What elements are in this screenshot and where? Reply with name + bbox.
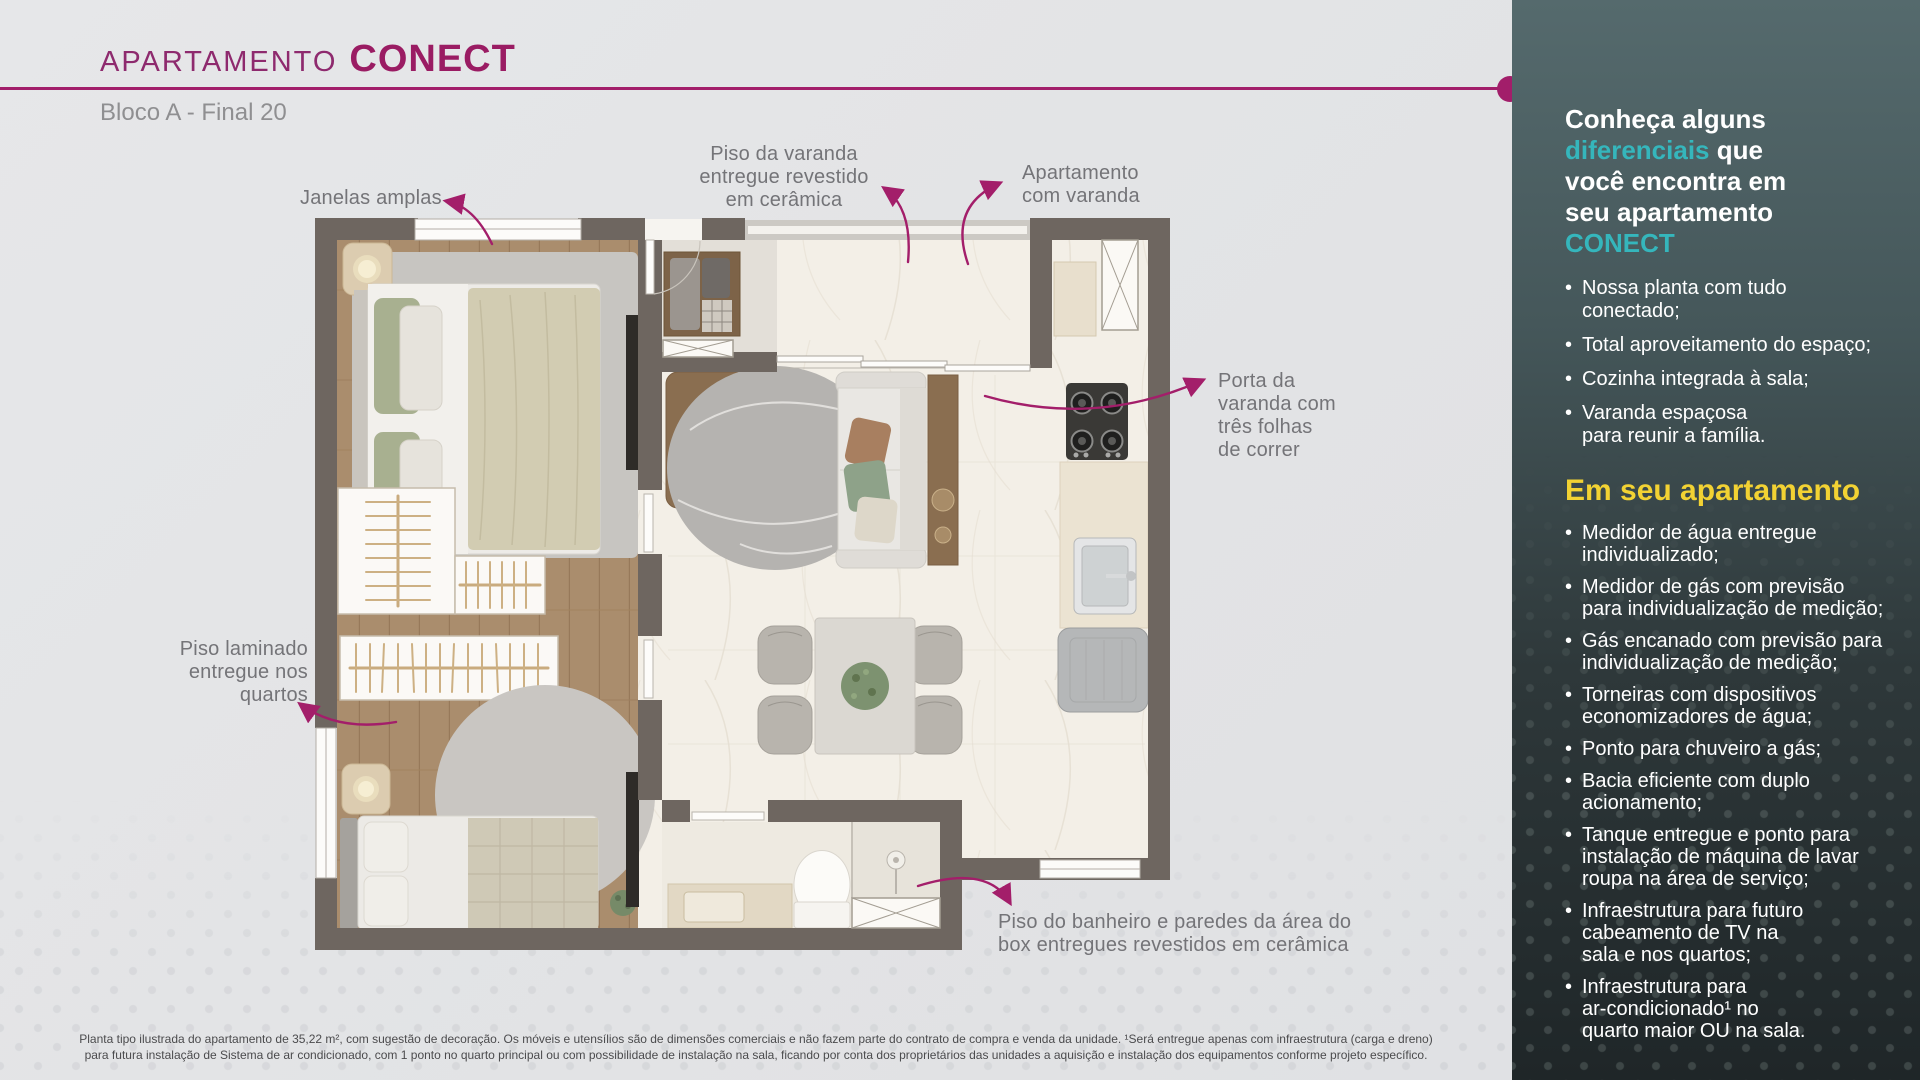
sidebar: Conheça alguns diferenciais que você enc… xyxy=(1512,0,1920,1080)
annotation-piso-varanda: Piso da varanda entregue revestido em ce… xyxy=(698,143,870,212)
lamp-icon xyxy=(358,781,374,797)
heading-accent-diferenciais: diferenciais xyxy=(1565,135,1710,165)
list-item: Nossa planta com tudo conectado; xyxy=(1565,277,1890,323)
bedroom2-door-leaf xyxy=(644,640,653,698)
entry-door-leaf xyxy=(646,240,654,294)
list-item: Medidor de água entregue individualizado… xyxy=(1565,522,1890,566)
heading-accent-conect: CONECT xyxy=(1565,228,1675,258)
annotation-piso-laminado: Piso laminado entregue nos quartos xyxy=(178,638,308,707)
bedroom2-window xyxy=(316,728,336,878)
list-item: Total aproveitamento do espaço; xyxy=(1565,334,1890,357)
cooktop xyxy=(1066,383,1128,460)
varanda-counter xyxy=(1054,262,1096,336)
bathroom-door-leaf xyxy=(692,812,764,820)
lamp-icon xyxy=(358,260,376,278)
list-item: Torneiras com dispositivos economizadore… xyxy=(1565,684,1890,728)
toilet xyxy=(794,850,850,928)
annotation-apartamento-varanda: Apartamento com varanda xyxy=(1022,162,1140,208)
list-item: Cozinha integrada à sala; xyxy=(1565,368,1890,391)
features-list: Medidor de água entregue individualizado… xyxy=(1565,522,1890,1042)
living-room xyxy=(666,366,958,570)
single-bed xyxy=(340,816,598,930)
list-item: Infraestrutura para futuro cabeamento de… xyxy=(1565,900,1890,966)
sofa xyxy=(836,372,926,568)
varanda xyxy=(664,252,740,336)
varanda-shaft xyxy=(663,340,733,357)
kitchen-shaft xyxy=(1102,240,1138,330)
tv-panel xyxy=(626,315,639,470)
bathroom-shaft xyxy=(852,898,940,928)
tv-panel xyxy=(626,772,639,907)
list-item: Bacia eficiente com duplo acionamento; xyxy=(1565,770,1890,814)
kitchen-sink xyxy=(1074,538,1136,614)
annotation-porta-varanda: Porta da varanda com três folhas de corr… xyxy=(1218,370,1336,462)
list-item: Medidor de gás com previsão para individ… xyxy=(1565,576,1890,620)
entry-opening xyxy=(645,219,702,240)
sidebar-section-title: Em seu apartamento xyxy=(1565,474,1890,508)
bedroom1-door-leaf xyxy=(644,494,653,552)
sidebar-heading: Conheça alguns diferenciais que você enc… xyxy=(1565,104,1890,259)
annotation-janelas-amplas: Janelas amplas xyxy=(300,187,442,210)
heading-part1: Conheça alguns xyxy=(1565,104,1766,134)
list-item: Infraestrutura para ar-condicionado¹ no … xyxy=(1565,976,1890,1042)
list-item: Tanque entregue e ponto para instalação … xyxy=(1565,824,1890,890)
legal-disclaimer: Planta tipo ilustrada do apartamento de … xyxy=(0,1031,1512,1063)
varanda-railing xyxy=(745,220,1030,240)
differentials-list: Nossa planta com tudo conectado; Total a… xyxy=(1565,277,1890,448)
bedroom1-window xyxy=(415,219,581,240)
list-item: Ponto para chuveiro a gás; xyxy=(1565,738,1890,760)
laundry-tank xyxy=(1058,628,1148,712)
list-item: Gás encanado com previsão para individua… xyxy=(1565,630,1890,674)
annotation-piso-banheiro: Piso do banheiro e paredes da área do bo… xyxy=(998,911,1428,957)
service-window xyxy=(1040,860,1140,878)
list-item: Varanda espaçosa para reunir a família. xyxy=(1565,402,1890,448)
bathroom-sink xyxy=(684,892,744,922)
